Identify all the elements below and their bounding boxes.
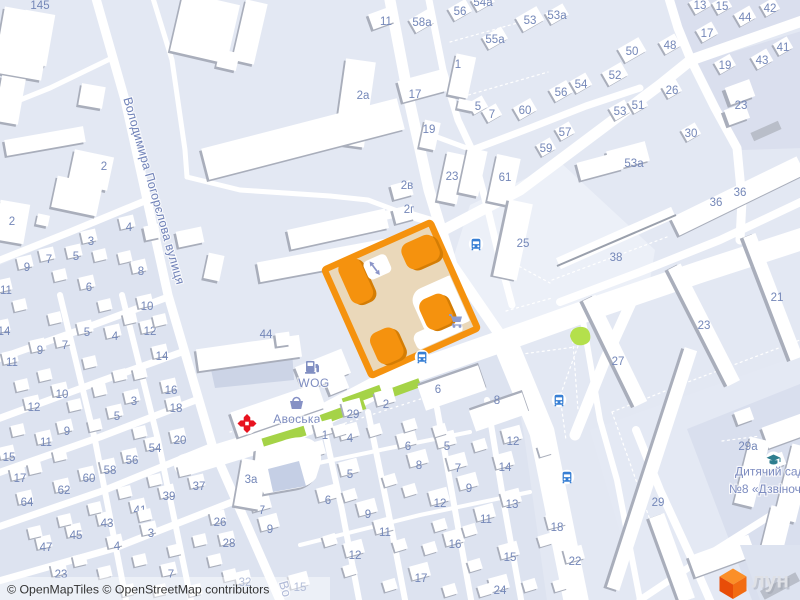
svg-text:27: 27 bbox=[612, 356, 625, 368]
svg-text:8: 8 bbox=[138, 266, 144, 278]
svg-text:7: 7 bbox=[62, 340, 68, 352]
svg-text:8: 8 bbox=[494, 395, 500, 407]
svg-text:18: 18 bbox=[170, 403, 183, 415]
svg-text:9: 9 bbox=[64, 426, 70, 438]
svg-text:лун: лун bbox=[752, 570, 789, 593]
svg-text:51: 51 bbox=[632, 100, 645, 112]
svg-text:9: 9 bbox=[37, 345, 43, 357]
svg-text:57: 57 bbox=[559, 127, 572, 139]
svg-text:22: 22 bbox=[569, 556, 582, 568]
svg-text:44: 44 bbox=[260, 329, 273, 341]
svg-text:62: 62 bbox=[58, 485, 71, 497]
svg-text:3: 3 bbox=[148, 528, 154, 540]
svg-text:53a: 53a bbox=[547, 10, 567, 22]
svg-text:48: 48 bbox=[664, 40, 677, 52]
svg-text:1: 1 bbox=[455, 59, 461, 71]
svg-text:56: 56 bbox=[126, 455, 139, 467]
svg-text:16: 16 bbox=[449, 539, 462, 551]
svg-text:9: 9 bbox=[24, 262, 30, 274]
svg-text:41: 41 bbox=[777, 42, 790, 54]
svg-text:56: 56 bbox=[555, 87, 568, 99]
svg-text:25: 25 bbox=[517, 238, 530, 250]
svg-text:54a: 54a bbox=[473, 0, 493, 9]
svg-text:11: 11 bbox=[480, 514, 492, 526]
svg-text:6: 6 bbox=[435, 384, 441, 396]
svg-text:2: 2 bbox=[9, 216, 15, 228]
svg-text:8: 8 bbox=[416, 460, 422, 472]
svg-text:7: 7 bbox=[46, 254, 52, 266]
svg-text:9: 9 bbox=[365, 509, 371, 521]
svg-text:13: 13 bbox=[694, 0, 707, 12]
svg-text:17: 17 bbox=[701, 28, 714, 40]
svg-text:36: 36 bbox=[710, 197, 723, 209]
svg-text:10: 10 bbox=[56, 389, 69, 401]
svg-text:3a: 3a bbox=[245, 474, 258, 486]
svg-text:5: 5 bbox=[73, 251, 79, 263]
svg-text:6: 6 bbox=[325, 495, 331, 507]
svg-text:14: 14 bbox=[156, 351, 169, 363]
svg-text:5: 5 bbox=[347, 469, 353, 481]
svg-text:5: 5 bbox=[114, 411, 120, 423]
svg-text:5: 5 bbox=[475, 101, 481, 113]
svg-text:2: 2 bbox=[383, 399, 389, 411]
svg-text:11: 11 bbox=[0, 285, 12, 297]
svg-text:№8 «Дзвіночок»: №8 «Дзвіночок» bbox=[729, 482, 800, 496]
svg-text:145: 145 bbox=[30, 0, 49, 12]
svg-text:5: 5 bbox=[444, 441, 450, 453]
svg-text:9: 9 bbox=[267, 524, 273, 536]
svg-text:3: 3 bbox=[88, 236, 94, 248]
svg-text:60: 60 bbox=[83, 473, 96, 485]
svg-text:7: 7 bbox=[455, 463, 461, 475]
svg-text:17: 17 bbox=[415, 573, 428, 585]
svg-text:Дитячий садок: Дитячий садок bbox=[735, 465, 800, 479]
svg-text:2: 2 bbox=[101, 161, 107, 173]
svg-text:© OpenMapTiles © OpenStreetMap: © OpenMapTiles © OpenStreetMap contribut… bbox=[7, 583, 269, 597]
svg-text:19: 19 bbox=[423, 124, 436, 136]
svg-text:29: 29 bbox=[347, 409, 360, 421]
svg-text:9: 9 bbox=[466, 483, 472, 495]
svg-text:23: 23 bbox=[446, 171, 459, 183]
svg-text:4: 4 bbox=[347, 433, 354, 445]
svg-text:6: 6 bbox=[405, 441, 411, 453]
svg-text:53: 53 bbox=[524, 15, 537, 27]
svg-text:17: 17 bbox=[14, 473, 27, 485]
svg-text:3: 3 bbox=[131, 396, 137, 408]
svg-text:39: 39 bbox=[163, 491, 176, 503]
svg-text:60: 60 bbox=[519, 105, 532, 117]
svg-text:19: 19 bbox=[719, 60, 732, 72]
svg-text:12: 12 bbox=[349, 550, 362, 562]
svg-text:13: 13 bbox=[506, 499, 519, 511]
svg-text:23: 23 bbox=[698, 320, 711, 332]
svg-text:11: 11 bbox=[40, 437, 52, 449]
svg-text:45: 45 bbox=[70, 530, 83, 542]
svg-text:20: 20 bbox=[174, 435, 187, 447]
svg-text:23: 23 bbox=[735, 100, 748, 112]
svg-text:11: 11 bbox=[6, 357, 18, 369]
svg-text:4: 4 bbox=[114, 541, 121, 553]
svg-text:26: 26 bbox=[214, 517, 227, 529]
svg-text:2в: 2в bbox=[401, 180, 414, 192]
svg-text:6: 6 bbox=[86, 282, 92, 294]
svg-text:52: 52 bbox=[609, 70, 622, 82]
svg-text:7: 7 bbox=[489, 109, 495, 121]
svg-text:58: 58 bbox=[104, 465, 117, 477]
svg-text:15: 15 bbox=[716, 1, 729, 13]
svg-text:53a: 53a bbox=[624, 158, 644, 170]
svg-text:43: 43 bbox=[756, 55, 769, 67]
svg-text:24: 24 bbox=[494, 585, 507, 597]
svg-text:37: 37 bbox=[193, 481, 206, 493]
svg-text:15: 15 bbox=[3, 452, 16, 464]
svg-text:18: 18 bbox=[551, 522, 564, 534]
svg-text:54: 54 bbox=[575, 79, 588, 91]
svg-text:54: 54 bbox=[149, 443, 162, 455]
svg-text:61: 61 bbox=[499, 172, 512, 184]
svg-text:36: 36 bbox=[734, 187, 747, 199]
svg-text:17: 17 bbox=[409, 89, 422, 101]
svg-text:55a: 55a bbox=[485, 34, 505, 46]
svg-text:11: 11 bbox=[380, 16, 392, 28]
svg-text:59: 59 bbox=[540, 143, 553, 155]
svg-text:47: 47 bbox=[40, 542, 53, 554]
svg-text:14: 14 bbox=[0, 326, 11, 338]
svg-text:12: 12 bbox=[434, 498, 447, 510]
svg-text:14: 14 bbox=[499, 462, 512, 474]
svg-text:2a: 2a bbox=[357, 90, 370, 102]
svg-text:42: 42 bbox=[764, 3, 777, 15]
svg-text:64: 64 bbox=[21, 497, 34, 509]
svg-text:21: 21 bbox=[771, 292, 784, 304]
svg-text:16: 16 bbox=[165, 385, 178, 397]
svg-text:WOG: WOG bbox=[298, 376, 330, 390]
svg-text:29a: 29a bbox=[738, 441, 758, 453]
svg-text:44: 44 bbox=[739, 12, 752, 24]
svg-text:29: 29 bbox=[652, 497, 665, 509]
svg-text:4: 4 bbox=[126, 222, 133, 234]
svg-text:38: 38 bbox=[610, 252, 623, 264]
svg-text:12: 12 bbox=[28, 402, 41, 414]
svg-text:56: 56 bbox=[454, 6, 467, 18]
svg-text:26: 26 bbox=[666, 85, 679, 97]
svg-text:43: 43 bbox=[101, 518, 114, 530]
svg-text:10: 10 bbox=[141, 301, 154, 313]
svg-text:2г: 2г bbox=[404, 204, 415, 216]
svg-text:15: 15 bbox=[504, 552, 517, 564]
svg-text:4: 4 bbox=[112, 331, 119, 343]
svg-text:50: 50 bbox=[626, 46, 639, 58]
svg-text:28: 28 bbox=[223, 538, 236, 550]
svg-text:12: 12 bbox=[507, 436, 520, 448]
svg-text:11: 11 bbox=[379, 527, 391, 539]
svg-text:1: 1 bbox=[322, 430, 328, 442]
svg-text:30: 30 bbox=[685, 128, 698, 140]
svg-text:58a: 58a bbox=[412, 17, 432, 29]
svg-text:5: 5 bbox=[84, 327, 90, 339]
svg-text:53: 53 bbox=[614, 106, 627, 118]
